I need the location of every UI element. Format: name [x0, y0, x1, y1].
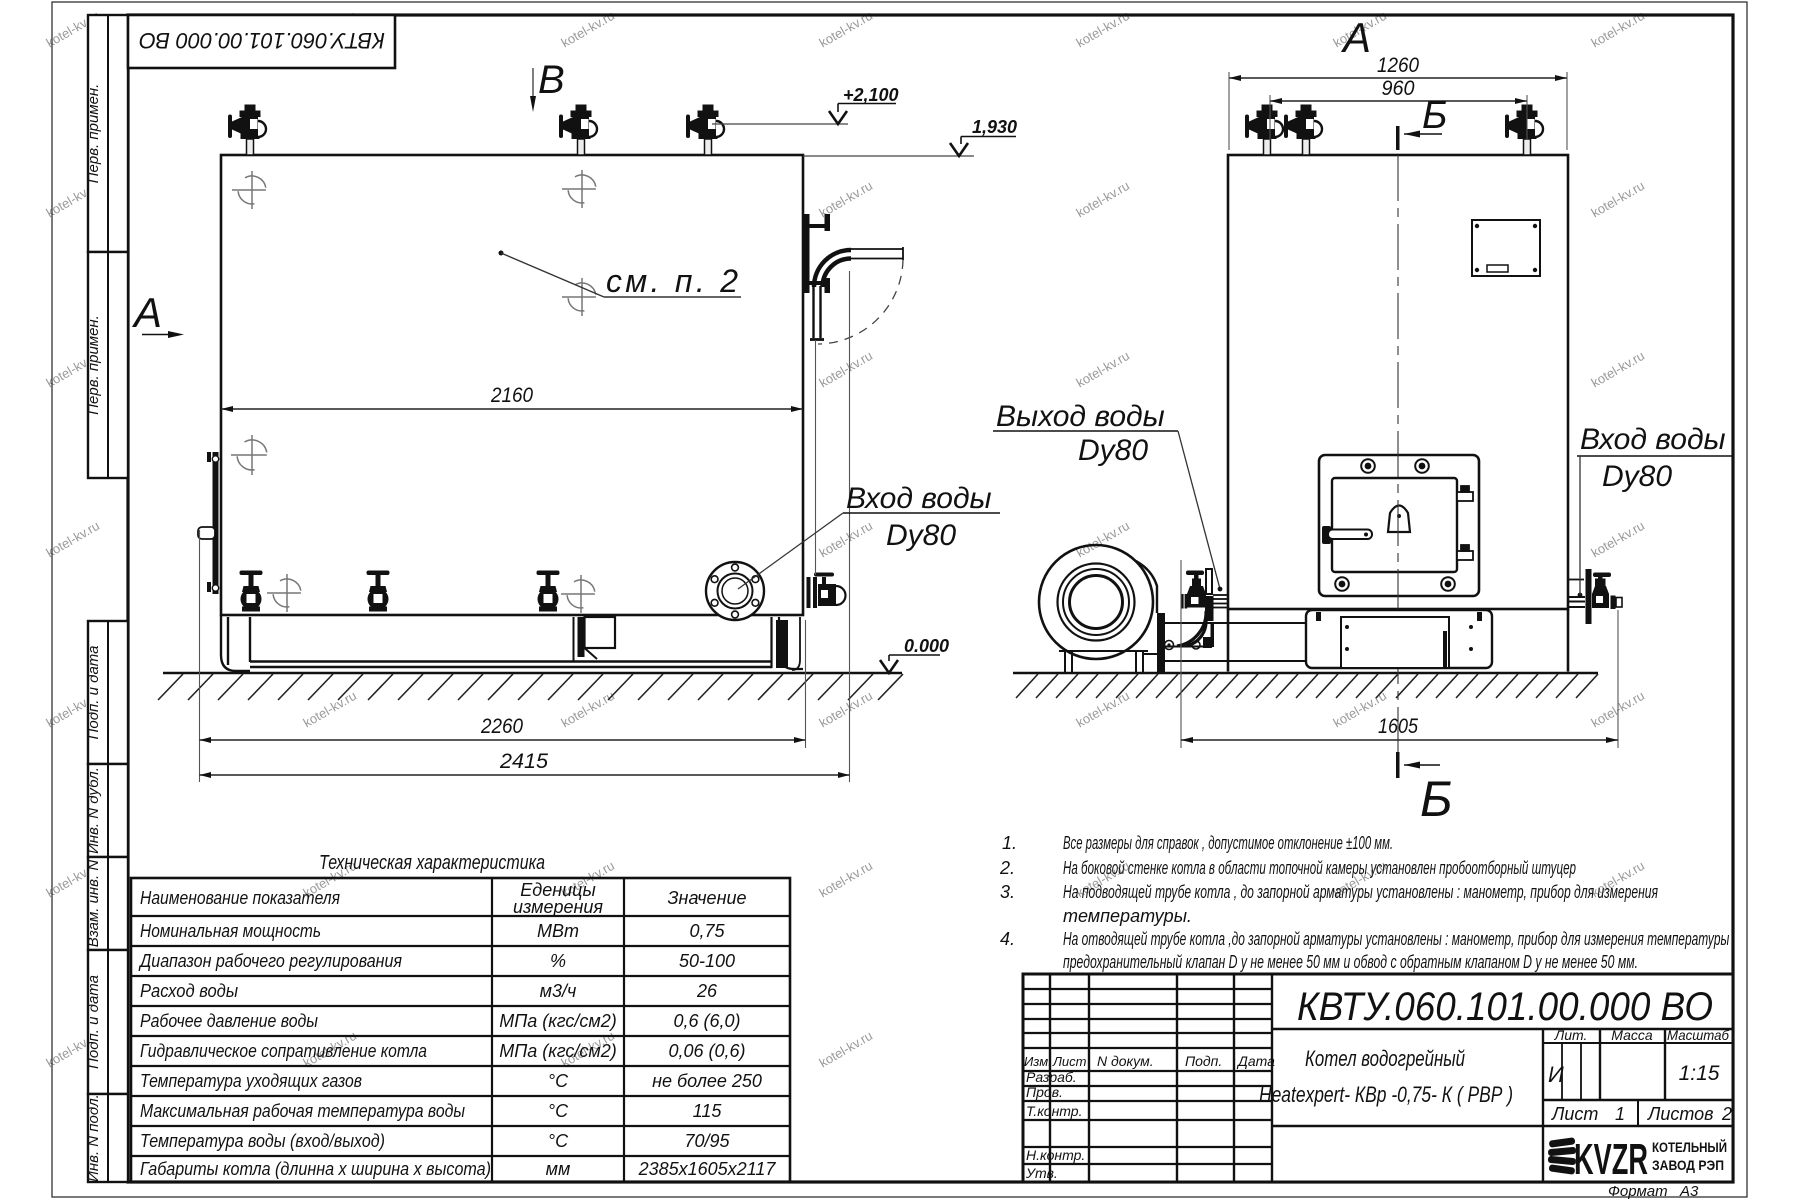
svg-text:Лист: Лист	[1551, 1104, 1598, 1124]
svg-text:2.: 2.	[999, 858, 1015, 878]
svg-text:Разраб.: Разраб.	[1026, 1069, 1077, 1085]
svg-text:115: 115	[693, 1101, 723, 1121]
svg-text:температуры.: температуры.	[1063, 906, 1192, 926]
svg-text:На отводящей трубе котла ,до з: На отводящей трубе котла ,до запорной ар…	[1063, 929, 1736, 949]
svg-text:KVZR: KVZR	[1574, 1135, 1648, 1184]
svg-text:Лист: Лист	[1052, 1054, 1087, 1069]
svg-text:Котел водогрейный: Котел водогрейный	[1305, 1046, 1465, 1071]
svg-text:1605: 1605	[1378, 715, 1418, 738]
svg-text:А3: А3	[1679, 1183, 1699, 1200]
svg-text:Изм.: Изм.	[1024, 1054, 1052, 1069]
svg-text:КВТУ.060.101.00.000 ВО: КВТУ.060.101.00.000 ВО	[139, 28, 385, 53]
svg-text:Перв. примен.: Перв. примен.	[85, 84, 102, 184]
svg-text:50-100: 50-100	[679, 951, 735, 971]
svg-text:Температура уходящих газов: Температура уходящих газов	[140, 1071, 362, 1091]
svg-text:1.: 1.	[1002, 833, 1017, 853]
svg-text:А: А	[1340, 14, 1371, 61]
svg-text:°С: °С	[548, 1131, 569, 1151]
svg-text:4.: 4.	[1000, 929, 1015, 949]
svg-text:1: 1	[1615, 1104, 1625, 1124]
svg-text:Номинальная мощность: Номинальная мощность	[140, 921, 321, 941]
svg-text:Dy80: Dy80	[1602, 460, 1672, 493]
svg-text:2260: 2260	[480, 715, 523, 738]
svg-text:Б: Б	[1422, 94, 1447, 137]
svg-text:Диапазон рабочего регулировани: Диапазон рабочего регулирования	[138, 951, 402, 971]
svg-text:26: 26	[696, 981, 718, 1001]
svg-text:Взам. инв. N: Взам. инв. N	[85, 860, 102, 948]
svg-text:Техническая характеристика: Техническая характеристика	[319, 852, 545, 874]
svg-text:Все размеры для справок , допу: Все размеры для справок , допустимое отк…	[1063, 833, 1393, 853]
svg-text:Т.контр.: Т.контр.	[1026, 1103, 1082, 1119]
svg-text:Дата: Дата	[1236, 1053, 1275, 1069]
svg-text:Лит.: Лит.	[1554, 1027, 1588, 1043]
svg-text:Heatexpert- КВр -0,75- К ( РВР: Heatexpert- КВр -0,75- К ( РВР )	[1259, 1082, 1513, 1107]
svg-text:предохранительный клапан D у: предохранительный клапан D у не менее 50…	[1063, 952, 1638, 972]
svg-text:Подп. и дата: Подп. и дата	[85, 646, 102, 740]
svg-text:не более 250: не более 250	[652, 1071, 762, 1091]
svg-text:3.: 3.	[1000, 882, 1015, 902]
svg-text:960: 960	[1382, 77, 1415, 100]
svg-text:Значение: Значение	[667, 888, 746, 908]
svg-text:МВт: МВт	[537, 921, 579, 941]
svg-text:Инв. N дубл.: Инв. N дубл.	[85, 767, 102, 854]
svg-text:Формат: Формат	[1608, 1183, 1668, 1200]
svg-text:Утв.: Утв.	[1025, 1165, 1058, 1181]
svg-text:КОТЕЛЬНЫЙ: КОТЕЛЬНЫЙ	[1652, 1138, 1727, 1155]
svg-text:Рабочее давление воды: Рабочее давление воды	[140, 1011, 318, 1031]
svg-text:А: А	[131, 289, 162, 336]
svg-text:м3/ч: м3/ч	[540, 981, 577, 1001]
svg-text:Максимальная рабочая температу: Максимальная рабочая температура воды	[140, 1101, 465, 1121]
svg-text:1260: 1260	[1377, 54, 1419, 77]
svg-text:0,75: 0,75	[689, 921, 725, 941]
svg-text:Листов: Листов	[1647, 1104, 1714, 1124]
svg-text:Выход воды: Выход воды	[996, 400, 1165, 433]
svg-text:В: В	[538, 58, 565, 102]
svg-text:Расход воды: Расход воды	[140, 981, 238, 1001]
svg-text:2385х1605х2117: 2385х1605х2117	[638, 1159, 777, 1179]
svg-text:Вход воды: Вход воды	[1580, 423, 1726, 456]
svg-text:Масса: Масса	[1611, 1027, 1653, 1043]
svg-text:N докум.: N докум.	[1097, 1053, 1154, 1069]
svg-text:%: %	[550, 951, 566, 971]
svg-text:Перв. примен.: Перв. примен.	[85, 315, 102, 415]
svg-text:0,06 (0,6): 0,06 (0,6)	[668, 1041, 745, 1061]
svg-text:измерения: измерения	[513, 897, 603, 917]
svg-text:Вход воды: Вход воды	[846, 482, 992, 515]
svg-text:МПа (кгс/см2): МПа (кгс/см2)	[499, 1011, 617, 1031]
svg-text:1,930: 1,930	[972, 117, 1017, 137]
svg-text:И: И	[1548, 1062, 1564, 1087]
svg-text:0,6 (6,0): 0,6 (6,0)	[673, 1011, 740, 1031]
svg-text:2415: 2415	[499, 750, 548, 773]
svg-text:+2,100: +2,100	[843, 85, 899, 105]
svg-text:На боковой стенке котла в обла: На боковой стенке котла в области топочн…	[1063, 858, 1576, 878]
svg-text:На подводящей трубе котла ,: На подводящей трубе котла , до запорной …	[1063, 882, 1658, 902]
svg-text:Dy80: Dy80	[886, 519, 956, 552]
svg-text:Инв. N подл.: Инв. N подл.	[85, 1094, 102, 1182]
svg-text:КВТУ.060.101.00.000 ВО: КВТУ.060.101.00.000 ВО	[1297, 985, 1713, 1029]
svg-text:Подп.: Подп.	[1185, 1053, 1222, 1069]
svg-text:1:15: 1:15	[1679, 1062, 1720, 1085]
svg-text:ЗАВОД РЭП: ЗАВОД РЭП	[1652, 1157, 1724, 1173]
svg-text:Температура воды (вход/выход): Температура воды (вход/выход)	[140, 1131, 385, 1151]
svg-text:0.000: 0.000	[904, 636, 949, 656]
svg-text:Dy80: Dy80	[1078, 434, 1148, 467]
svg-text:мм: мм	[546, 1159, 571, 1179]
svg-text:Габариты котла (длинна х ширин: Габариты котла (длинна х ширина х высота…	[140, 1159, 491, 1179]
svg-text:Масштаб: Масштаб	[1667, 1027, 1730, 1043]
svg-text:Гидравлическое сопративление к: Гидравлическое сопративление котла	[140, 1041, 427, 1061]
svg-text:МПа (кгс/см2): МПа (кгс/см2)	[499, 1041, 617, 1061]
svg-text:Наименование показателя: Наименование показателя	[140, 888, 340, 908]
svg-text:Н.контр.: Н.контр.	[1026, 1147, 1085, 1163]
svg-text:Подп. и дата: Подп. и дата	[85, 975, 102, 1069]
svg-text:Пров.: Пров.	[1026, 1084, 1063, 1100]
svg-text:70/95: 70/95	[684, 1131, 730, 1151]
svg-text:°С: °С	[548, 1071, 569, 1091]
svg-text:°С: °С	[548, 1101, 569, 1121]
svg-text:Б: Б	[1420, 771, 1453, 827]
svg-text:2: 2	[1721, 1104, 1732, 1124]
svg-text:2160: 2160	[490, 384, 533, 407]
